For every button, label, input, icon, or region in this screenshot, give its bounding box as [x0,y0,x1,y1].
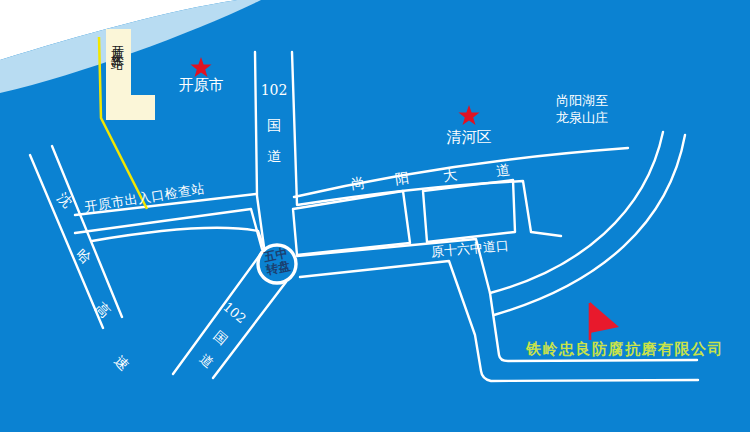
lake-route-label-line2: 龙泉山庄 [556,111,608,126]
train-station-label: 开原火车站 [111,35,126,50]
bypass-curve-outer [494,135,685,315]
city-block-1 [293,191,410,255]
shangyang-char-yang: 阳 [393,169,411,187]
bypass-curve-inner [490,132,663,293]
lake-route-label-line1: 尚阳湖至 [556,94,608,109]
shangyang-avenue-top [294,148,628,197]
g102-south-left [173,252,262,374]
map-canvas [0,0,750,432]
company-label: 铁岭忠良防腐抗磨有限公司 [526,340,724,359]
kaiyuan-star-icon [191,57,212,77]
shangyang-char-da: 大 [441,166,459,184]
expressway-ramp [92,228,264,248]
crossing-road-bottom [300,261,698,381]
g102-north-right-shangyang-bottom [292,52,561,236]
kaiyuan-city-label: 开原市 [177,77,225,94]
city-block-2 [423,180,515,242]
flag-pennant [590,302,619,333]
g102-north-number: 102 [256,82,292,98]
company-flag-icon [590,302,619,340]
qinghe-district-label: 清河区 [445,129,493,146]
g102-north-char-guo: 国 [266,117,282,133]
shangyang-char-shang: 尚 [349,174,367,192]
kaiyuan-schematic-map: 开原火车站 开原市 清河区 尚阳湖至 龙泉山庄 102 国 道 102 国 道 … [0,0,750,432]
shangyang-char-dao: 道 [494,161,512,179]
city-stars [191,57,480,125]
qinghe-star-icon [459,105,480,125]
g102-north-char-dao: 道 [266,148,282,164]
